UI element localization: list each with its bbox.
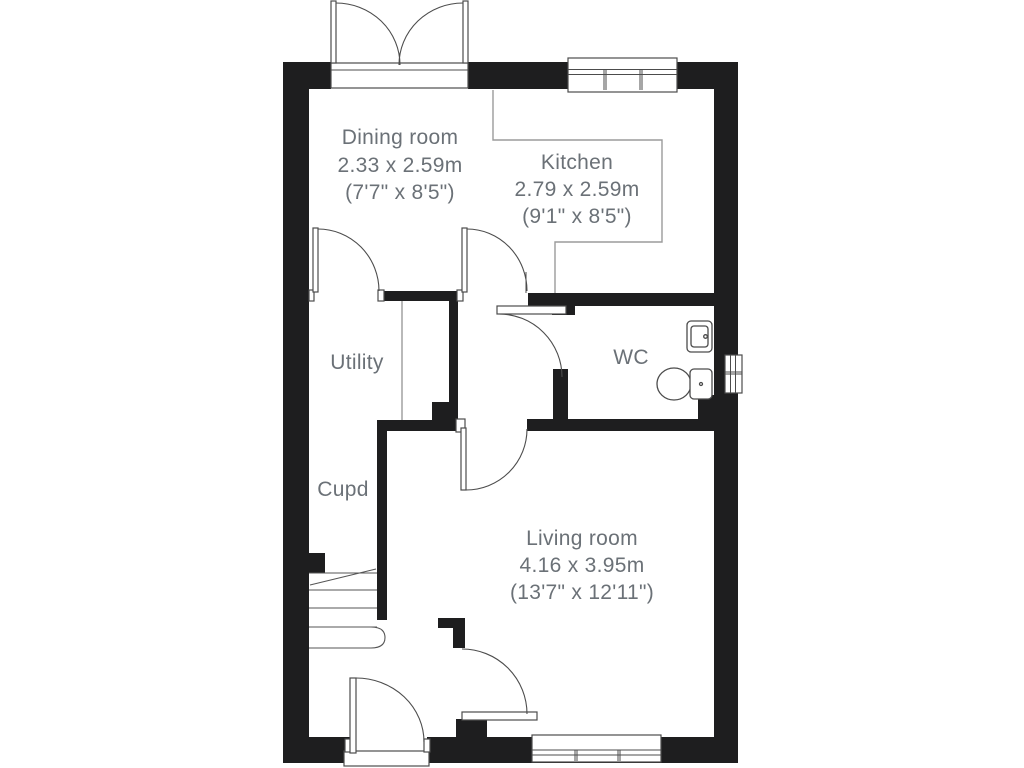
door-leaf	[461, 428, 466, 490]
frame-cap	[424, 739, 430, 752]
window-wc-icon	[725, 355, 742, 393]
french-door-icon	[331, 1, 468, 88]
wall-top-a	[283, 62, 331, 89]
toilet-cistern-dot	[700, 383, 703, 386]
dining-room-label: Dining room	[342, 126, 459, 149]
kitchen-label: Kitchen	[541, 151, 613, 174]
french-door-leaf-right	[463, 1, 468, 63]
stairs-icon	[309, 569, 385, 648]
wall-cupboard-top	[377, 420, 458, 431]
wc-label: WC	[613, 346, 649, 369]
wall-dining-utility	[383, 291, 458, 301]
kitchen-metric: 2.79 x 2.59m	[514, 178, 639, 201]
wall-hall-living-stub-b	[453, 618, 465, 648]
door-swing-icon	[462, 649, 527, 714]
living-room-door-top	[461, 428, 527, 490]
french-door-threshold	[331, 63, 468, 88]
floor-plan: Dining room 2.33 x 2.59m (7'7" x 8'5") K…	[0, 0, 1024, 768]
wall-wc-left	[553, 369, 568, 431]
dining-room-imperial: (7'7" x 8'5")	[345, 181, 455, 204]
wc-door	[497, 306, 566, 377]
sink-icon	[687, 321, 712, 352]
wall-stair-stub	[308, 553, 325, 573]
wall-utility-hall	[449, 301, 458, 402]
living-room-imperial: (13'7" x 12'11")	[510, 581, 654, 604]
french-door-swing-right	[399, 3, 463, 65]
sink-tap-dot	[704, 335, 708, 339]
window-bottom-icon	[532, 735, 661, 762]
utility-label: Utility	[330, 351, 384, 374]
toilet-bowl	[657, 368, 691, 400]
door-leaf	[313, 228, 318, 292]
wall-left	[283, 62, 309, 763]
window-top-icon	[568, 58, 677, 92]
door-swing-icon	[499, 314, 562, 377]
toilet-icon	[657, 368, 712, 400]
stair-bullnose-step	[309, 627, 385, 648]
living-room-metric: 4.16 x 3.95m	[519, 554, 644, 577]
room-labels: Dining room 2.33 x 2.59m (7'7" x 8'5") K…	[317, 126, 654, 604]
utility-door	[313, 228, 379, 292]
french-door-leaf-left	[331, 1, 336, 63]
door-leaf	[462, 228, 467, 292]
door-swing-icon	[467, 229, 527, 291]
door-swing-icon	[356, 678, 424, 742]
front-door-threshold	[344, 751, 429, 766]
wall-top-b	[468, 62, 568, 89]
hall-to-kitchen-door	[462, 228, 527, 292]
living-room-label: Living room	[526, 527, 638, 550]
french-door-swing-left	[336, 3, 400, 65]
door-leaf	[462, 712, 537, 720]
window-frame	[532, 735, 661, 762]
door-swing-icon	[318, 229, 379, 291]
wall-bottom-a	[283, 737, 350, 763]
wall-cupboard-hall	[377, 431, 387, 620]
wall-utility-hall-jog	[432, 402, 458, 420]
front-door	[344, 678, 430, 766]
frame-cap	[378, 290, 384, 301]
living-room-door-bottom	[462, 649, 537, 720]
door-swing-icon	[466, 429, 527, 490]
kitchen-imperial: (9'1" x 8'5")	[522, 205, 632, 228]
floor-plan-canvas: Dining room 2.33 x 2.59m (7'7" x 8'5") K…	[0, 0, 1024, 768]
stair-treads	[309, 573, 377, 627]
door-leaf	[350, 678, 356, 753]
wall-hall-living-jamb	[456, 719, 487, 737]
cupboard-label: Cupd	[317, 478, 368, 501]
dining-room-metric: 2.33 x 2.59m	[337, 154, 462, 177]
wall-right	[714, 62, 738, 763]
door-leaf	[497, 306, 566, 314]
